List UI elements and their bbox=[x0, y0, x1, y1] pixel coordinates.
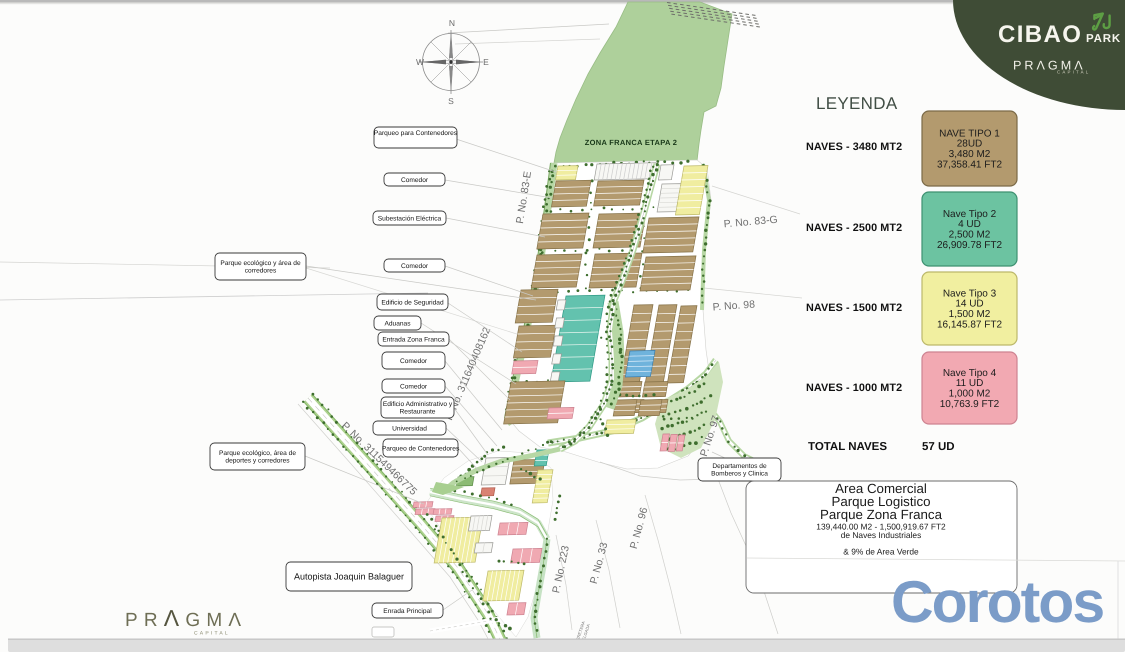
svg-text:1,000 M2: 1,000 M2 bbox=[949, 389, 991, 400]
svg-text:Enrada Principal: Enrada Principal bbox=[383, 608, 432, 615]
svg-text:Nave Tipo 3: Nave Tipo 3 bbox=[943, 288, 997, 299]
svg-text:Parque ecológico, área de: Parque ecológico, área de bbox=[219, 450, 296, 457]
svg-text:Edificio de Seguridad: Edificio de Seguridad bbox=[381, 299, 444, 306]
svg-text:Subestación Eléctrica: Subestación Eléctrica bbox=[378, 215, 442, 222]
svg-text:Parqueo de Contenedores: Parqueo de Contenedores bbox=[382, 445, 460, 452]
svg-text:& 9% de Area Verde: & 9% de Area Verde bbox=[843, 547, 919, 557]
svg-text:Parqueo para Contenedores: Parqueo para Contenedores bbox=[374, 130, 458, 137]
svg-text:3,480 M2: 3,480 M2 bbox=[949, 149, 991, 160]
svg-text:37,358.41 FT2: 37,358.41 FT2 bbox=[937, 160, 1002, 171]
svg-text:11 UD: 11 UD bbox=[956, 378, 984, 389]
svg-text:Parque ecológico y área de: Parque ecológico y área de bbox=[220, 260, 301, 267]
svg-text:E: E bbox=[483, 57, 489, 67]
svg-text:16,145.87 FT2: 16,145.87 FT2 bbox=[937, 320, 1002, 331]
svg-text:N: N bbox=[449, 18, 455, 28]
svg-text:Comedor: Comedor bbox=[401, 263, 429, 270]
svg-text:Edificio Administrativo y: Edificio Administrativo y bbox=[383, 401, 453, 408]
svg-text:W: W bbox=[416, 57, 424, 67]
svg-text:10,763.9 FT2: 10,763.9 FT2 bbox=[940, 399, 1000, 410]
svg-text:14 UD: 14 UD bbox=[955, 299, 983, 310]
svg-text:CAPITAL: CAPITAL bbox=[1057, 70, 1090, 75]
svg-text:2,500 M2: 2,500 M2 bbox=[949, 230, 991, 241]
svg-text:deportes y corredores: deportes y corredores bbox=[225, 458, 290, 465]
svg-text:26,909.78 FT2: 26,909.78 FT2 bbox=[937, 240, 1002, 251]
svg-text:NAVES - 3480 MT2: NAVES - 3480 MT2 bbox=[806, 141, 902, 153]
svg-text:Autopista Joaquin Balaguer: Autopista Joaquin Balaguer bbox=[294, 572, 404, 582]
svg-text:NAVES - 2500 MT2: NAVES - 2500 MT2 bbox=[806, 222, 902, 234]
svg-text:CAPITAL: CAPITAL bbox=[194, 631, 230, 637]
svg-text:Aduanas: Aduanas bbox=[384, 320, 411, 327]
svg-text:corredores: corredores bbox=[245, 268, 277, 275]
svg-text:Corotos: Corotos bbox=[891, 569, 1103, 635]
svg-text:ZONA FRANCA ETAPA 2: ZONA FRANCA ETAPA 2 bbox=[585, 138, 678, 147]
svg-text:Parque Zona Franca: Parque Zona Franca bbox=[820, 507, 943, 522]
svg-text:LEYENDA: LEYENDA bbox=[816, 94, 898, 113]
svg-text:Nave Tipo 2: Nave Tipo 2 bbox=[943, 209, 997, 220]
svg-text:Comedor: Comedor bbox=[400, 358, 428, 365]
svg-text:57 UD: 57 UD bbox=[922, 441, 955, 453]
svg-text:PARK: PARK bbox=[1086, 33, 1121, 45]
svg-text:Universidad: Universidad bbox=[392, 425, 427, 432]
svg-text:CIBAO: CIBAO bbox=[998, 21, 1082, 48]
svg-text:Bomberos y Clinica: Bomberos y Clinica bbox=[711, 471, 768, 478]
svg-text:NAVES - 1500 MT2: NAVES - 1500 MT2 bbox=[806, 302, 902, 314]
svg-text:28UD: 28UD bbox=[957, 139, 983, 150]
svg-text:NAVE TIPO 1: NAVE TIPO 1 bbox=[939, 128, 1000, 139]
svg-text:Comedor: Comedor bbox=[400, 383, 428, 390]
svg-text:Departamentos de: Departamentos de bbox=[712, 463, 767, 470]
svg-text:Restaurante: Restaurante bbox=[400, 409, 436, 416]
svg-text:NAVES - 1000 MT2: NAVES - 1000 MT2 bbox=[806, 382, 902, 394]
svg-text:de Naves Industriales: de Naves Industriales bbox=[841, 530, 922, 540]
svg-text:TOTAL NAVES: TOTAL NAVES bbox=[808, 441, 887, 453]
svg-text:Nave Tipo 4: Nave Tipo 4 bbox=[943, 368, 997, 379]
svg-text:Entrada Zona Franca: Entrada Zona Franca bbox=[382, 336, 445, 343]
svg-text:S: S bbox=[448, 96, 454, 106]
svg-text:1,500 M2: 1,500 M2 bbox=[949, 309, 991, 320]
svg-text:Comedor: Comedor bbox=[401, 177, 429, 184]
svg-text:4 UD: 4 UD bbox=[958, 219, 981, 230]
